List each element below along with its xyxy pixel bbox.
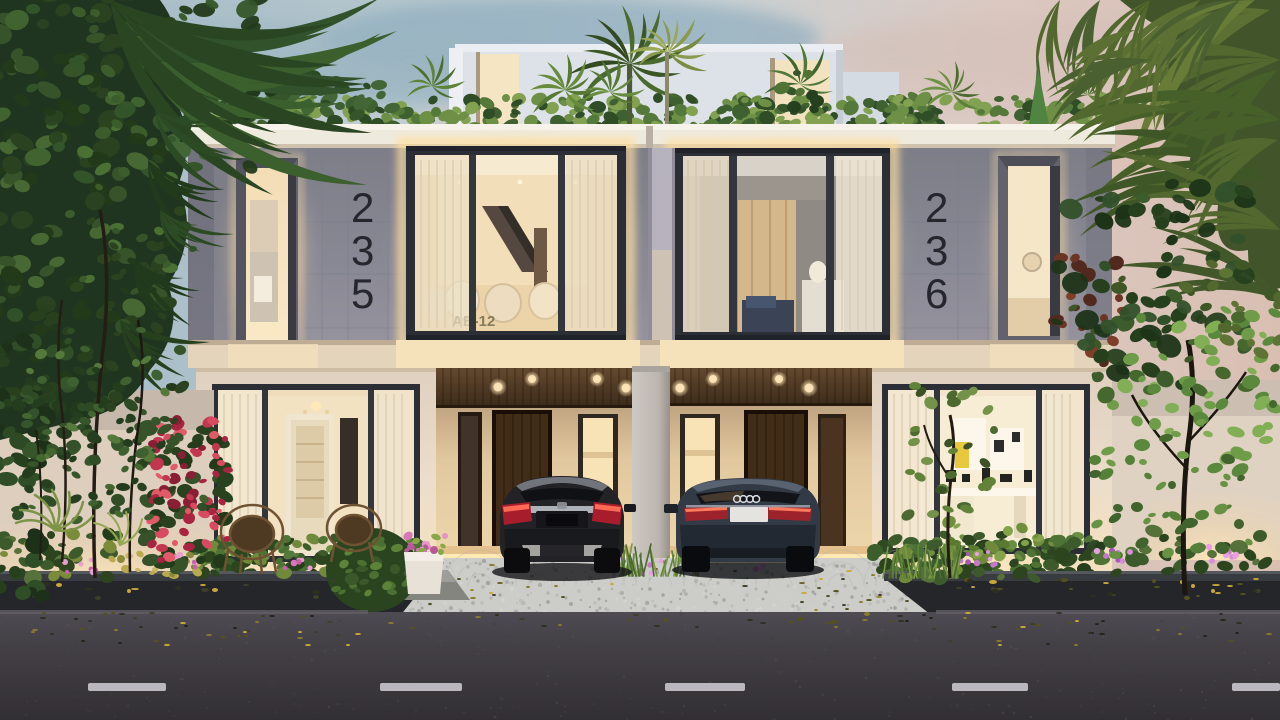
svg-text:3: 3 [925, 227, 948, 274]
svg-text:6: 6 [925, 270, 948, 317]
svg-text:3: 3 [351, 227, 374, 274]
svg-text:2: 2 [925, 184, 948, 231]
svg-text:5: 5 [351, 270, 374, 317]
svg-text:2: 2 [351, 184, 374, 231]
